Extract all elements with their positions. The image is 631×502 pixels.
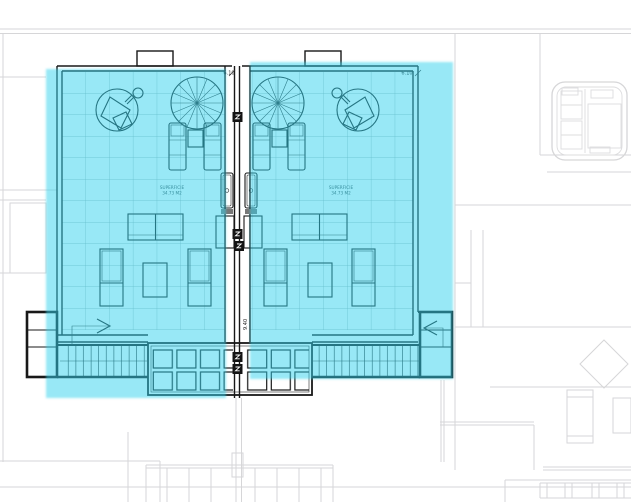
electrical-box-icon xyxy=(233,229,243,239)
highlight-right-terrace[interactable] xyxy=(250,62,453,379)
diamond-feature xyxy=(580,340,628,388)
chimney-left xyxy=(137,51,173,66)
hot-tub-icon xyxy=(552,82,627,160)
floor-plan-canvas: 6.10 6.10 9.40 SUPERFICIE 34.73 M2 SUPER… xyxy=(0,0,631,502)
underlay-features xyxy=(540,340,631,498)
electrical-box-icon xyxy=(233,112,243,122)
highlight-left-terrace[interactable] xyxy=(46,69,226,398)
floor-plan-viewport: 6.10 6.10 9.40 SUPERFICIE 34.73 M2 SUPER… xyxy=(0,0,631,502)
electrical-box-icon xyxy=(233,352,243,362)
ghost-deck xyxy=(146,465,333,502)
electrical-box-icon xyxy=(234,241,244,251)
electrical-box-icon xyxy=(233,364,243,374)
dimension-center-vertical: 9.40 xyxy=(243,319,249,330)
